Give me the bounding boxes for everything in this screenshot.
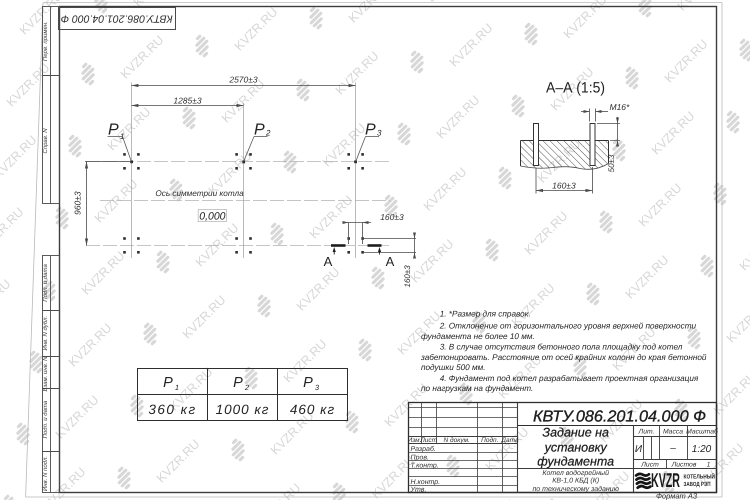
svg-text:0,000: 0,000 bbox=[199, 210, 225, 222]
svg-text:2. Отклонение от горизонтал: 2. Отклонение от горизонтального уровня … bbox=[439, 322, 697, 331]
svg-text:фундамента не более 10 мм.: фундамента не более 10 мм. bbox=[421, 332, 535, 341]
svg-text:160±3: 160±3 bbox=[380, 212, 404, 222]
svg-text:Листов: Листов bbox=[671, 462, 697, 469]
svg-text:Формат А3: Формат А3 bbox=[656, 492, 698, 500]
svg-text:P: P bbox=[365, 122, 376, 139]
svg-text:Дата: Дата bbox=[500, 437, 519, 444]
svg-text:–: – bbox=[669, 443, 676, 454]
svg-text:КВ-1,0 КБД (К): КВ-1,0 КБД (К) bbox=[552, 477, 599, 485]
svg-text:KVZR: KVZR bbox=[651, 470, 680, 492]
svg-text:А: А bbox=[324, 254, 333, 269]
svg-text:N докум.: N докум. bbox=[444, 437, 470, 444]
svg-text:2: 2 bbox=[244, 383, 250, 392]
svg-text:Подп. и дата: Подп. и дата bbox=[42, 264, 49, 302]
svg-text:Задание на: Задание на bbox=[542, 426, 609, 440]
svg-text:P: P bbox=[254, 122, 265, 139]
svg-text:Перв. примен.: Перв. примен. bbox=[42, 21, 49, 61]
svg-text:P: P bbox=[163, 375, 173, 391]
svg-text:Подп. и дата: Подп. и дата bbox=[42, 400, 49, 438]
svg-text:Т.контр.: Т.контр. bbox=[411, 462, 439, 469]
svg-text:ЗАВОД РЭП: ЗАВОД РЭП bbox=[684, 481, 711, 488]
svg-text:50±3: 50±3 bbox=[607, 154, 616, 172]
svg-text:1000 кг: 1000 кг bbox=[216, 402, 270, 417]
svg-text:1:20: 1:20 bbox=[692, 444, 712, 455]
svg-text:Ось симметрии котла: Ось симметрии котла bbox=[155, 189, 244, 198]
svg-text:И: И bbox=[635, 444, 643, 455]
svg-text:Н.контр.: Н.контр. bbox=[411, 479, 441, 486]
svg-text:установку: установку bbox=[544, 441, 608, 455]
svg-text:4. Фундамент под котел раз: 4. Фундамент под котел разрабатывает про… bbox=[440, 374, 699, 383]
svg-text:А–А (1:5): А–А (1:5) bbox=[546, 80, 605, 97]
svg-text:2570±3: 2570±3 bbox=[228, 75, 258, 85]
svg-text:Инв. N дубл.: Инв. N дубл. bbox=[42, 316, 49, 351]
svg-text:фундамента: фундамента bbox=[537, 455, 614, 469]
svg-text:160±3: 160±3 bbox=[552, 180, 576, 190]
svg-text:1. *Размер для справок.: 1. *Размер для справок. bbox=[440, 310, 531, 319]
svg-text:забетонировать. Расстояние о: забетонировать. Расстояние от осей крайн… bbox=[420, 353, 707, 362]
svg-text:М16*: М16* bbox=[610, 102, 631, 112]
svg-text:Справ. N: Справ. N bbox=[42, 128, 49, 154]
svg-text:1: 1 bbox=[707, 462, 711, 469]
svg-text:Подп.: Подп. bbox=[481, 437, 498, 444]
svg-text:Разраб.: Разраб. bbox=[411, 445, 436, 453]
svg-text:подушки 500 мм.: подушки 500 мм. bbox=[421, 363, 486, 372]
svg-text:Инв. N подл.: Инв. N подл. bbox=[42, 456, 49, 491]
svg-text:Лит.: Лит. bbox=[638, 429, 655, 436]
svg-text:по нагрузкам на фундамент.: по нагрузкам на фундамент. bbox=[421, 384, 533, 393]
svg-text:Лист: Лист bbox=[419, 437, 437, 444]
svg-text:1285±3: 1285±3 bbox=[173, 95, 202, 105]
svg-text:3. В случае отсутствия бет: 3. В случае отсутствия бетонного пола пл… bbox=[440, 343, 683, 352]
svg-text:КОТЕЛЬНЫЙ: КОТЕЛЬНЫЙ bbox=[684, 473, 716, 481]
svg-text:по техническому заданию: по техническому заданию bbox=[532, 485, 619, 493]
svg-text:Лист: Лист bbox=[640, 462, 659, 469]
svg-text:А: А bbox=[386, 254, 395, 269]
svg-text:Пров.: Пров. bbox=[411, 454, 430, 461]
svg-text:КВТУ.086.201.04.000 Ф: КВТУ.086.201.04.000 Ф bbox=[61, 13, 173, 25]
svg-text:460 кг: 460 кг bbox=[290, 402, 335, 417]
svg-text:Котел водогрейный: Котел водогрейный bbox=[542, 469, 609, 477]
svg-text:КВТУ.086.201.04.000 Ф: КВТУ.086.201.04.000 Ф bbox=[533, 409, 706, 426]
svg-text:Взам. инв. N: Взам. инв. N bbox=[42, 356, 49, 392]
svg-text:Масштаб: Масштаб bbox=[686, 429, 719, 436]
svg-text:P: P bbox=[303, 375, 313, 391]
svg-text:160±3: 160±3 bbox=[403, 265, 412, 288]
svg-text:360 кг: 360 кг bbox=[148, 402, 196, 417]
svg-text:1: 1 bbox=[175, 383, 179, 392]
svg-text:P: P bbox=[108, 122, 119, 139]
svg-text:960±3: 960±3 bbox=[73, 191, 83, 215]
svg-text:P: P bbox=[233, 375, 243, 391]
svg-text:Утв.: Утв. bbox=[410, 486, 427, 493]
svg-text:Масса: Масса bbox=[663, 429, 683, 436]
